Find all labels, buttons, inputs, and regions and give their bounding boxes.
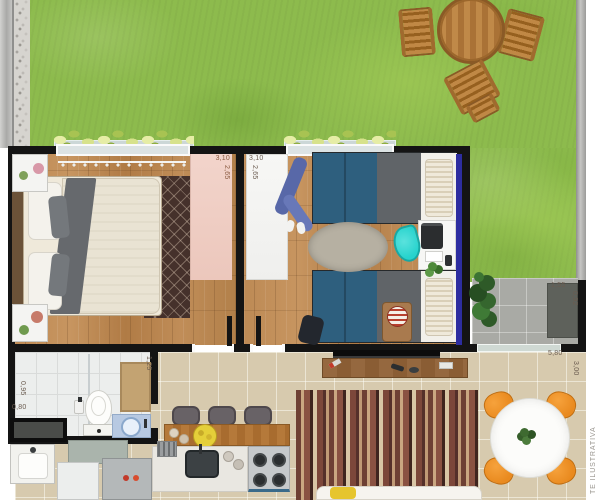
dim-bedroom2-width: 3,10 xyxy=(249,155,263,163)
garden-lawn-side xyxy=(470,148,576,282)
dining-table xyxy=(490,398,570,478)
double-bed xyxy=(12,176,162,316)
wall-bedroom2-right xyxy=(462,146,470,352)
shower-column xyxy=(74,400,84,414)
faucet-icon xyxy=(199,444,202,454)
fridge-item-red xyxy=(123,475,129,481)
toilet xyxy=(85,390,112,426)
faucet-icon xyxy=(144,419,147,428)
wall-between-bedrooms xyxy=(236,146,244,352)
patterned-vase xyxy=(387,306,408,327)
dim-patio-depth: 0,92 xyxy=(570,291,578,305)
utensil-rack xyxy=(157,441,177,457)
plate xyxy=(223,451,234,462)
floor-plan-render: 3,10 2,65 3,10 2,65 0,95 0,80 xyxy=(0,0,600,500)
curtain-rod xyxy=(58,160,186,168)
decor-bowl xyxy=(31,311,43,323)
plate xyxy=(179,434,189,444)
bathroom-vanity xyxy=(112,414,151,438)
table-centerpiece xyxy=(520,428,529,437)
plate xyxy=(233,459,244,470)
tank-basin xyxy=(18,453,48,479)
shower-box-floor xyxy=(10,418,67,442)
garden-chair-left xyxy=(398,7,436,58)
shower-head-icon xyxy=(78,397,82,402)
bedside-stool xyxy=(382,302,412,342)
stove xyxy=(248,446,290,492)
desk-plant xyxy=(428,262,437,271)
burner-icon xyxy=(253,473,267,487)
wall-bedroom1-bottom xyxy=(8,344,195,352)
single-bed-top xyxy=(312,152,456,224)
fridge-item-red xyxy=(133,475,139,481)
console-decor xyxy=(439,362,453,369)
door-jamb xyxy=(282,344,285,352)
door-jamb xyxy=(192,344,195,352)
laptop xyxy=(421,223,443,249)
bar-stool xyxy=(208,406,236,426)
desk xyxy=(418,220,456,270)
accent-wall-blue xyxy=(456,154,462,345)
burner-icon xyxy=(272,453,286,467)
tank-faucet-icon xyxy=(30,447,36,453)
boundary-fence-right xyxy=(576,0,586,280)
dim-bedroom1-depth: 2,65 xyxy=(222,165,230,179)
burner-icon xyxy=(253,453,267,467)
wall-patio-right xyxy=(578,280,586,344)
dim-bedroom1-width: 3,10 xyxy=(202,155,230,163)
decor-plant xyxy=(19,171,28,180)
remote-control xyxy=(409,367,419,373)
plate xyxy=(169,428,179,438)
right-margin xyxy=(586,0,600,500)
living-room-rug xyxy=(296,390,478,500)
vanity-sink xyxy=(121,417,141,437)
dim-patio-width: 1,55 xyxy=(551,282,565,290)
door-jamb xyxy=(250,344,253,352)
refrigerator xyxy=(102,458,152,500)
wall-living-right xyxy=(561,344,586,352)
bed-blanket-gray xyxy=(377,153,421,223)
tv xyxy=(333,350,440,358)
dim-living-width: 5,80 xyxy=(548,350,562,358)
kitchen-sink xyxy=(185,450,219,478)
dining-set xyxy=(490,398,570,478)
dim-shower-depth: 0,95 xyxy=(18,381,26,395)
breakfast-bar xyxy=(164,424,290,446)
pillow xyxy=(425,159,453,217)
nightstand-top xyxy=(12,154,48,192)
sofa-cushion xyxy=(330,487,356,499)
door-leaf-bedroom2 xyxy=(256,316,261,346)
bedroom2-rug xyxy=(308,222,388,272)
washing-machine xyxy=(57,462,99,500)
burner-icon xyxy=(272,473,286,487)
console-decor xyxy=(329,358,342,368)
pillow xyxy=(425,278,453,336)
laundry-tank xyxy=(10,444,55,484)
decor-flowers xyxy=(33,163,44,174)
phone xyxy=(445,255,452,266)
kitchen-counter xyxy=(152,446,248,492)
bar-stool xyxy=(244,406,272,426)
bed-blanket-blue xyxy=(313,153,377,223)
flush-button xyxy=(97,429,101,433)
patio-plant xyxy=(474,272,484,282)
wall-patio-stub xyxy=(470,344,477,352)
toilet-tank xyxy=(83,424,114,436)
bar-stool xyxy=(172,406,200,426)
toilet-seat xyxy=(91,396,106,416)
fruit-bowl xyxy=(193,424,217,448)
nightstand-bottom xyxy=(12,304,48,342)
dim-bedroom2-depth: 2,65 xyxy=(250,165,258,179)
dim-bath-width: 1,25 xyxy=(144,356,152,370)
notebook xyxy=(425,251,443,262)
watermark-text: TE ILUSTRATIVA xyxy=(590,426,597,494)
door-leaf-bedroom1 xyxy=(227,316,232,346)
remote-control xyxy=(391,363,405,372)
tv-console xyxy=(322,358,468,378)
gravel-strip xyxy=(14,0,30,148)
dim-shower-width: 0,80 xyxy=(12,404,26,412)
bed-blanket-blue xyxy=(313,271,377,342)
decor-plant xyxy=(19,325,29,335)
boundary-wall-left xyxy=(0,0,14,148)
dim-living-depth: 3,00 xyxy=(571,361,579,375)
window-bedroom1 xyxy=(56,144,190,156)
